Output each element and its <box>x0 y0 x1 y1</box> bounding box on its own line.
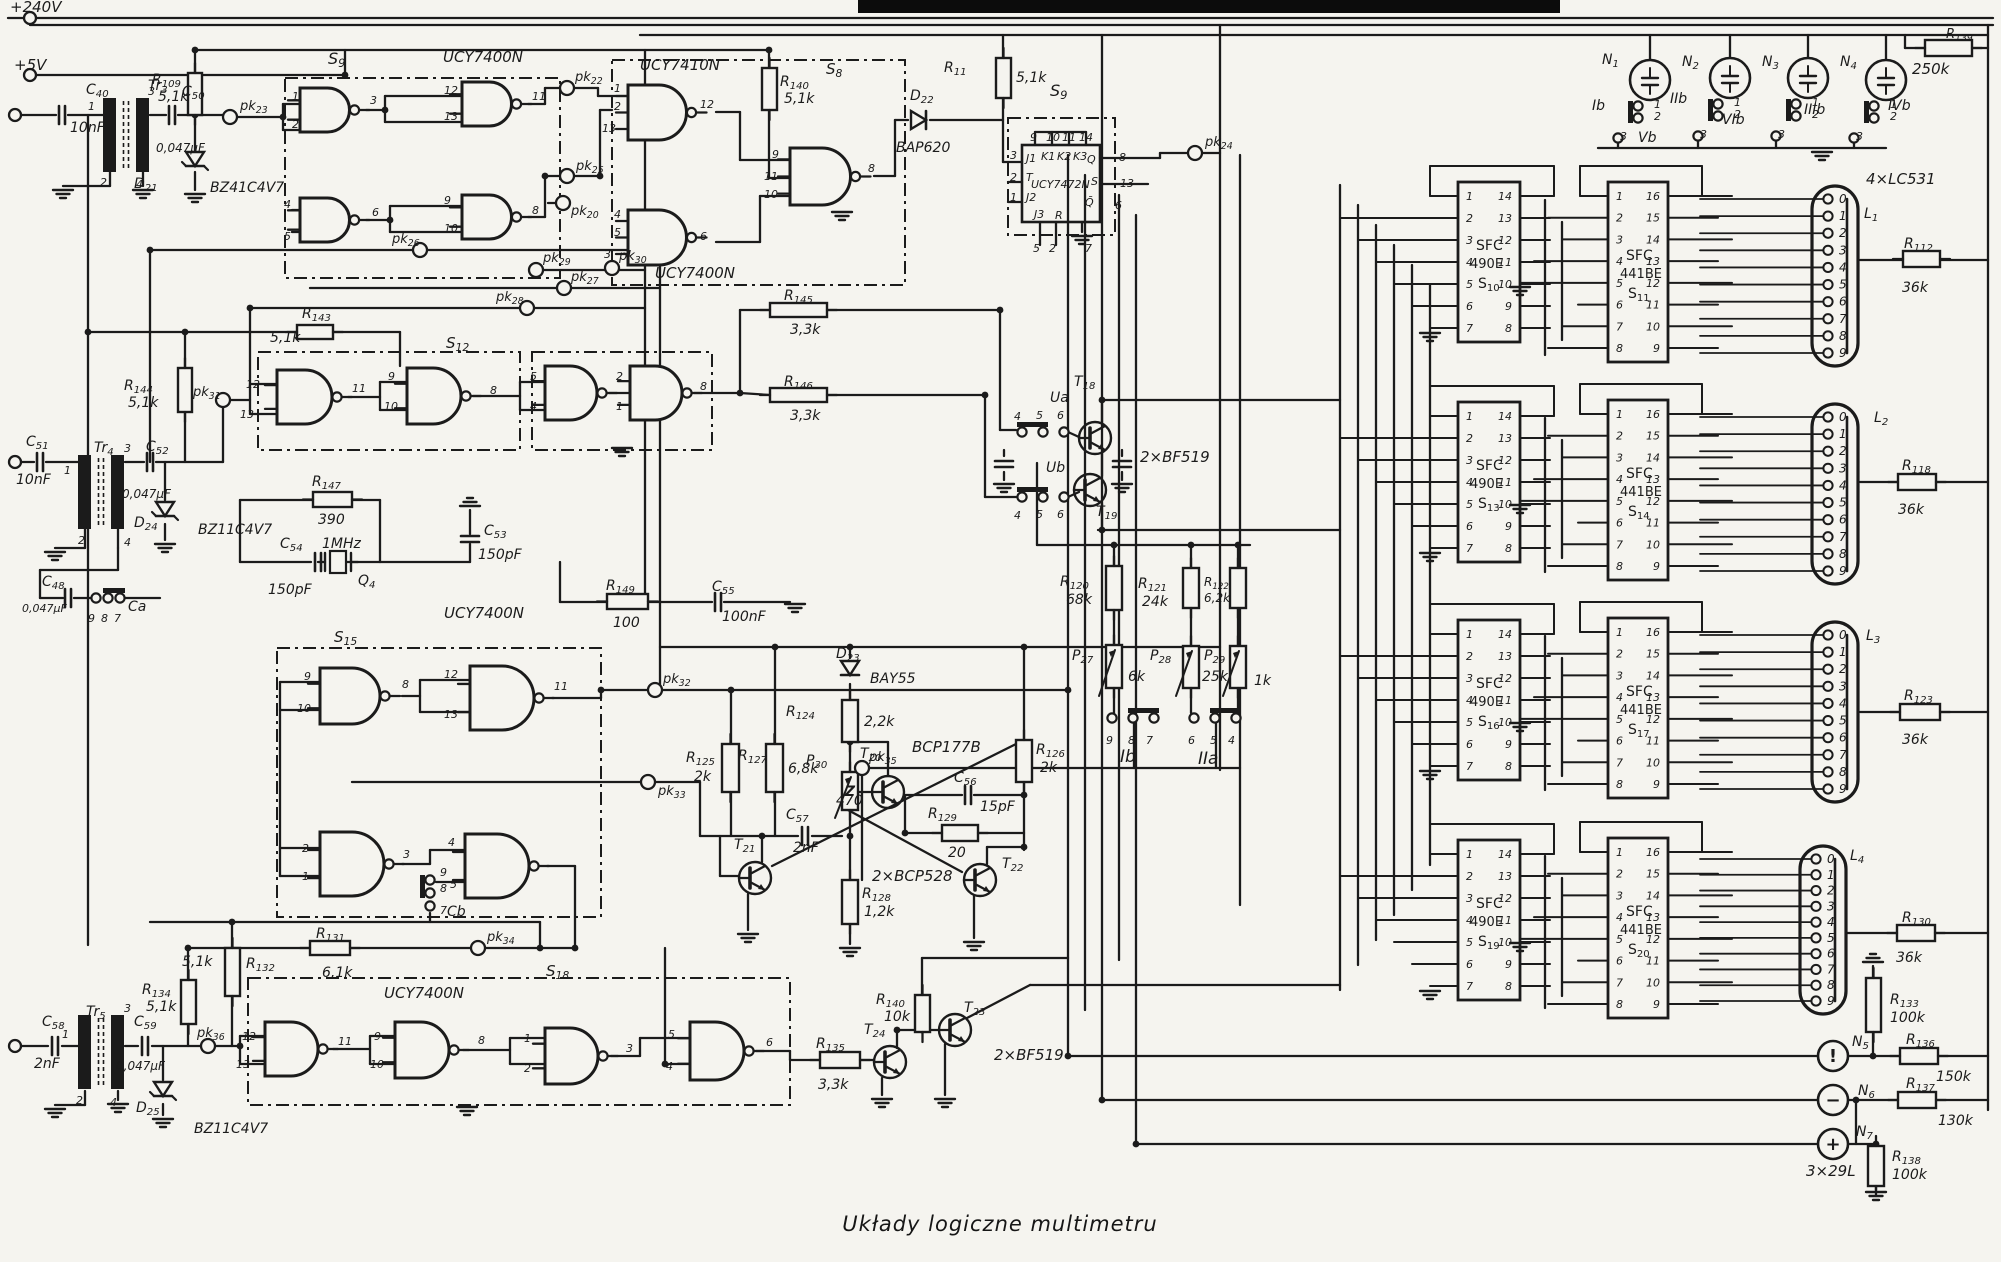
label-441be: 441BE <box>1620 267 1662 282</box>
contact-pin <box>91 593 100 602</box>
label-1: 1 <box>614 82 621 95</box>
label-n1: N1 <box>1602 52 1619 70</box>
junction-dot <box>598 687 605 694</box>
label-8: 8 <box>440 882 447 895</box>
label-r140: R140 <box>876 992 905 1010</box>
label-q4: Q4 <box>358 573 375 591</box>
junction-dot <box>728 687 735 694</box>
label-250k: 250k <box>1912 60 1951 78</box>
contact-pin <box>1869 101 1878 110</box>
junction-dot <box>847 833 854 840</box>
ground-icon <box>1866 1192 1886 1200</box>
label-15: 15 <box>1646 868 1660 881</box>
label-5: 5 <box>450 878 457 891</box>
label-100nf: 100nF <box>722 609 767 625</box>
contact-bridge <box>420 875 425 898</box>
label-4: 4 <box>614 208 621 221</box>
label-11: 11 <box>1062 131 1076 144</box>
label-3: 3 <box>1616 889 1623 902</box>
label-14: 14 <box>1498 410 1512 423</box>
label-10: 10 <box>1498 278 1512 291</box>
label-2bf519: 2×BF519 <box>994 1046 1064 1064</box>
pk-point-pk36: pk36 <box>196 1026 225 1053</box>
label-ua: Ua <box>1050 390 1069 406</box>
cathode-pin <box>1811 918 1820 927</box>
label-4: 4 <box>1014 410 1021 423</box>
label-490e: 490E <box>1470 477 1503 492</box>
label-15pf: 15pF <box>980 799 1016 815</box>
resistor-R138 <box>1868 1136 1884 1196</box>
label-1: 1 <box>1616 626 1623 639</box>
junction-dot <box>1099 1097 1106 1104</box>
label-61k: 6,1k <box>322 965 353 981</box>
label-1: 1 <box>1466 628 1473 641</box>
label-r121: R121 <box>1138 576 1167 594</box>
label-8: 8 <box>1616 998 1623 1011</box>
label-0: 0 <box>1839 628 1847 642</box>
cathode-pin <box>1823 194 1832 203</box>
junction-dot <box>387 217 394 224</box>
label-1k: 1k <box>1254 673 1272 689</box>
junction-dot <box>997 307 1004 314</box>
junction-dot <box>1099 527 1106 534</box>
label-5: 5 <box>1839 714 1847 728</box>
label-6: 6 <box>1839 295 1847 309</box>
label-ucy7472n: UCY7472N <box>1031 178 1090 191</box>
label-2: 2 <box>524 1062 531 1075</box>
label-5: 5 <box>530 370 537 383</box>
label-r144: R144 <box>124 378 153 396</box>
junction-dot <box>1133 1141 1140 1148</box>
label-2: 2 <box>292 118 299 131</box>
label-7: 7 <box>1146 734 1153 747</box>
label-6: 6 <box>1616 299 1623 312</box>
label-6: 6 <box>1616 955 1623 968</box>
contact-group <box>1017 487 1069 502</box>
resistor-R135 <box>810 1052 870 1068</box>
ground-icon <box>155 544 175 552</box>
nand-gate <box>383 1022 469 1078</box>
label-8: 8 <box>1119 151 1126 164</box>
label-r11: R11 <box>944 60 967 78</box>
label-s8: S8 <box>826 60 843 80</box>
ground-icon <box>1863 954 1883 962</box>
label-c53: C53 <box>484 523 507 541</box>
label-8: 8 <box>1616 560 1623 573</box>
cathode-pin <box>1823 515 1832 524</box>
label-100k: 100k <box>1892 1167 1928 1183</box>
label-9: 9 <box>444 194 451 207</box>
label-6: 6 <box>1057 409 1064 422</box>
nand-gate <box>618 366 702 420</box>
label-sfc: SFC <box>1626 684 1653 700</box>
label-1: 1 <box>62 1028 69 1041</box>
label-7: 7 <box>1466 542 1473 555</box>
junction-dot <box>982 392 989 399</box>
label-sfc: SFC <box>1476 676 1503 692</box>
label-33k: 3,3k <box>790 322 821 338</box>
label-c57: C57 <box>786 807 809 825</box>
cathode-pin <box>1823 784 1832 793</box>
label-10k: 10k <box>884 1009 911 1025</box>
label-2k: 2k <box>1040 760 1058 776</box>
junction-dot <box>85 329 92 336</box>
potentiometer-P28 <box>1176 636 1199 698</box>
label-2: 2 <box>1616 648 1623 661</box>
cathode-pin <box>1811 886 1820 895</box>
potentiometer-P29 <box>1223 636 1246 698</box>
contact-pin <box>425 875 434 884</box>
chip-S14: 11621531441351261171089SFC441BES14 <box>1520 384 1732 580</box>
contact-pin <box>115 593 124 602</box>
label-12: 12 <box>444 668 458 681</box>
label-c55: C55 <box>712 579 735 597</box>
label-6: 6 <box>1466 300 1473 313</box>
resistor-R118 <box>1888 474 1946 490</box>
label-cb: Cb <box>447 904 466 920</box>
label-p30: P30 <box>806 753 827 771</box>
ground-icon <box>872 1099 892 1107</box>
label-3: 3 <box>1466 454 1473 467</box>
capacitor <box>965 786 971 804</box>
contact-pin <box>1633 101 1642 110</box>
junction-dot <box>1021 844 1028 851</box>
label-7: 7 <box>1466 980 1473 993</box>
contact-pin <box>1128 713 1137 722</box>
chip-S10: 1142133124115106978SFC490ES10 <box>1340 166 1554 342</box>
chip-S20: 11621531441351261171089SFC441BES20 <box>1520 822 1732 1018</box>
label-n6: N6 <box>1858 1083 1875 1101</box>
label-sfc: SFC <box>1626 904 1653 920</box>
label-6: 6 <box>1057 508 1064 521</box>
capacitor <box>59 106 65 124</box>
label-5: 5 <box>1036 508 1043 521</box>
label-10: 10 <box>1046 131 1060 144</box>
label-sfc: SFC <box>1476 896 1503 912</box>
label-s15: S15 <box>334 628 357 648</box>
label-sfc: SFC <box>1626 466 1653 482</box>
label-bz11c4v7: BZ11C4V7 <box>198 522 272 538</box>
label-j3: J3 <box>1032 208 1044 221</box>
label-2: 2 <box>1839 444 1847 458</box>
label-1: 1 <box>292 90 299 103</box>
label-7: 7 <box>1466 322 1473 335</box>
label-9: 9 <box>1839 782 1847 796</box>
cathode-pin <box>1811 981 1820 990</box>
nand-gate <box>533 1028 618 1084</box>
label-bz41c4v7: BZ41C4V7 <box>210 180 284 196</box>
label-8: 8 <box>1616 778 1623 791</box>
junction-dot <box>902 830 909 837</box>
label-13: 13 <box>1120 177 1134 190</box>
contact-group <box>91 588 125 603</box>
transistor-T18 <box>1079 422 1111 454</box>
cathode-pin <box>1811 965 1820 974</box>
ground-icon <box>457 1107 477 1115</box>
label-pk23: pk23 <box>239 99 268 116</box>
label-16: 16 <box>1646 190 1660 203</box>
contact-pin <box>1149 713 1158 722</box>
label-r133: R133 <box>1890 992 1919 1010</box>
resistor-R126 <box>1016 730 1032 792</box>
resistor-R11 <box>996 48 1011 108</box>
junction-dot <box>759 833 766 840</box>
contact-group <box>1786 99 1801 121</box>
nand-gate <box>308 832 404 896</box>
label-10: 10 <box>297 702 311 715</box>
pk-point-pk25: pk25 <box>560 159 604 183</box>
label-51k: 5,1k <box>270 330 301 346</box>
transistor-T22 <box>964 864 996 896</box>
label-r146: R146 <box>784 374 813 392</box>
label-k1: K1 <box>1041 150 1055 163</box>
capacitor <box>37 453 43 471</box>
chip-S19: 1142133124115106978SFC490ES19 <box>1340 824 1554 1000</box>
label-pk27: pk27 <box>570 270 599 287</box>
label-4: 4 <box>136 178 143 191</box>
label-c52: C52 <box>146 439 169 457</box>
label-490e: 490E <box>1470 695 1503 710</box>
label-2: 2 <box>1734 108 1741 121</box>
label-14: 14 <box>1079 131 1093 144</box>
contact-pin <box>1059 492 1068 501</box>
contact-pin <box>1633 113 1642 122</box>
capacitor <box>461 536 479 542</box>
label-2: 2 <box>1839 226 1847 240</box>
junction-dot <box>537 945 544 952</box>
cathode-pin <box>1823 246 1832 255</box>
label-bcp177b: BCP177B <box>912 738 981 756</box>
label-9: 9 <box>772 148 779 161</box>
label-329l: 3×29L <box>1806 1162 1856 1180</box>
label-3: 3 <box>626 1042 633 1055</box>
label-r127: R127 <box>738 748 768 766</box>
label-ucy7400n: UCY7400N <box>444 604 524 622</box>
resistor-R125 <box>722 734 739 802</box>
contact-bridge <box>1128 708 1159 713</box>
junction-dot <box>1021 644 1028 651</box>
cathode-pin <box>1823 532 1832 541</box>
label-1: 1 <box>524 1032 531 1045</box>
contact-bridge <box>1210 708 1241 713</box>
ground-icon <box>1420 991 1440 999</box>
label-10nf: 10nF <box>70 120 106 136</box>
label-15: 15 <box>1646 212 1660 225</box>
contact-pin <box>1017 492 1026 501</box>
contact-pin <box>1791 99 1800 108</box>
label-2: 2 <box>1466 432 1473 445</box>
capacitor <box>52 1037 58 1055</box>
junction-dot <box>894 1027 901 1034</box>
label-n4: N4 <box>1840 54 1857 72</box>
label-3: 3 <box>1466 672 1473 685</box>
label-13: 13 <box>1498 212 1512 225</box>
label-4: 4 <box>1839 696 1847 710</box>
label-5: 5 <box>1466 498 1473 511</box>
label-25k: 25k <box>1202 669 1229 685</box>
label-l3: L3 <box>1866 628 1880 646</box>
label-8: 8 <box>1839 765 1847 779</box>
chip-S17: 11621531441351261171089SFC441BES17 <box>1520 602 1732 798</box>
label-5: 5 <box>1210 734 1217 747</box>
label-6: 6 <box>1466 958 1473 971</box>
label-r124: R124 <box>786 704 815 722</box>
label-51k: 5,1k <box>158 89 189 105</box>
label-3: 3 <box>1466 234 1473 247</box>
label-c59: C59 <box>134 1014 157 1032</box>
contact-pin <box>1189 713 1198 722</box>
label-c56: C56 <box>954 770 977 788</box>
cathode-pin <box>1823 630 1832 639</box>
ground-icon <box>964 942 984 950</box>
label-1: 1 <box>1839 645 1847 659</box>
cathode-pin <box>1811 933 1820 942</box>
label-14: 14 <box>1646 889 1660 902</box>
label-441be: 441BE <box>1620 923 1662 938</box>
label-20: 20 <box>948 845 966 861</box>
label-8: 8 <box>402 678 409 691</box>
junction-dot <box>237 1043 244 1050</box>
label-14: 14 <box>1498 628 1512 641</box>
label-9: 9 <box>1653 778 1660 791</box>
contact-pin <box>1107 713 1116 722</box>
capacitor <box>715 593 721 611</box>
label-1mhz: 1MHz <box>322 536 362 552</box>
junction-dot <box>182 329 189 336</box>
junction-dot <box>147 247 154 254</box>
label-2: 2 <box>1049 242 1056 255</box>
label-r139: R139 <box>1946 27 1973 44</box>
nand-gate <box>450 195 532 239</box>
label-2: 2 <box>302 842 309 855</box>
label-t24: T24 <box>864 1022 885 1040</box>
label-3: 3 <box>370 94 377 107</box>
diode-D22 <box>911 111 926 129</box>
label-0: 0 <box>1839 192 1847 206</box>
label-130k: 130k <box>1938 1113 1974 1129</box>
contact-pin <box>1210 713 1219 722</box>
cathode-pin <box>1823 464 1832 473</box>
label-9: 9 <box>1505 520 1512 533</box>
cathode-pin <box>1811 949 1820 958</box>
label-8: 8 <box>1839 547 1847 561</box>
label-t20: T20 <box>860 746 881 764</box>
label-13: 13 <box>444 708 458 721</box>
label-11: 11 <box>764 170 778 183</box>
label-8: 8 <box>1505 980 1512 993</box>
label-ucy7410n: UCY7410N <box>640 56 720 74</box>
label-3: 3 <box>1827 899 1835 913</box>
label-36k: 36k <box>1902 732 1929 748</box>
input-terminal <box>9 456 21 468</box>
neon-lamp-N1 <box>1630 60 1670 100</box>
label-s12: S12 <box>446 334 469 354</box>
cathode-pin <box>1811 996 1820 1005</box>
label-33k: 3,3k <box>818 1077 849 1093</box>
nixie-tube-L3: 0123456789 <box>1700 622 1858 802</box>
transistor-T20 <box>872 776 904 808</box>
label-2bcp528: 2×BCP528 <box>872 867 953 885</box>
ground-icon <box>1420 553 1440 561</box>
label-3: 3 <box>1466 892 1473 905</box>
label-6: 6 <box>700 230 707 243</box>
contact-pin <box>1038 492 1047 501</box>
diode-D25 <box>150 1082 176 1100</box>
label-5: 5 <box>1036 409 1043 422</box>
label-3: 3 <box>1700 128 1707 141</box>
ground-icon <box>1420 771 1440 779</box>
label-9: 9 <box>88 612 95 625</box>
resistor-R129 <box>932 825 988 841</box>
nand-gate <box>288 88 370 132</box>
label-11: 11 <box>532 90 546 103</box>
transistor-T23 <box>939 1014 971 1046</box>
label-6: 6 <box>1827 947 1835 961</box>
label-441be: 441BE <box>1620 703 1662 718</box>
label-2: 2 <box>1890 110 1897 123</box>
label-k3: K3 <box>1073 150 1087 163</box>
cathode-pin <box>1823 481 1832 490</box>
junction-dot <box>1065 687 1072 694</box>
label-5: 5 <box>284 230 291 243</box>
contact-bridge <box>1017 487 1048 492</box>
label-2: 2 <box>1616 430 1623 443</box>
contact-pin <box>1869 113 1878 122</box>
resistor-R140b <box>915 985 930 1042</box>
label-51k: 5,1k <box>1016 70 1047 86</box>
contact-pin <box>1791 111 1800 120</box>
nand-gate <box>678 1022 764 1080</box>
label-r136: R136 <box>1906 1032 1935 1050</box>
label-r145: R145 <box>784 288 813 306</box>
label-r125: R125 <box>686 750 715 768</box>
label-r135: R135 <box>816 1036 845 1054</box>
capacitor <box>169 106 175 124</box>
label-r140: R140 <box>780 74 809 92</box>
label-ucy7400n: UCY7400N <box>443 48 523 66</box>
junction-dot <box>1065 1053 1072 1060</box>
cathode-pin <box>1811 854 1820 863</box>
label-r129: R129 <box>928 806 957 824</box>
ground-icon <box>994 484 1014 492</box>
pk-point-pk24: pk24 <box>1188 135 1233 160</box>
label-10: 10 <box>1646 976 1660 989</box>
label-c40: C40 <box>86 82 109 100</box>
label-36k: 36k <box>1896 950 1923 966</box>
label-15: 15 <box>1646 648 1660 661</box>
contact-bridge <box>1708 99 1713 121</box>
capacitor <box>1113 461 1131 467</box>
junction-dot <box>192 47 199 54</box>
label-9: 9 <box>1653 560 1660 573</box>
label-7: 7 <box>440 904 447 917</box>
cathode-pin <box>1823 733 1832 742</box>
pk-point-pk28: pk28 <box>495 290 534 315</box>
cathode-pin <box>1823 750 1832 759</box>
label-0047f: 0,047µF <box>22 602 67 615</box>
components-layer: Z1142133124115106978SFC490ES101142133124… <box>9 12 1982 1200</box>
label-t21: T21 <box>734 837 755 855</box>
indicator-glyph: ! <box>1829 1046 1837 1067</box>
label-pk28: pk28 <box>495 290 524 307</box>
label-3: 3 <box>124 1002 131 1015</box>
label-5: 5 <box>1839 496 1847 510</box>
label-9: 9 <box>1030 131 1037 144</box>
transformer <box>78 1015 124 1089</box>
label-3: 3 <box>148 85 155 98</box>
label-11: 11 <box>554 680 568 693</box>
junction-dot <box>572 945 579 952</box>
